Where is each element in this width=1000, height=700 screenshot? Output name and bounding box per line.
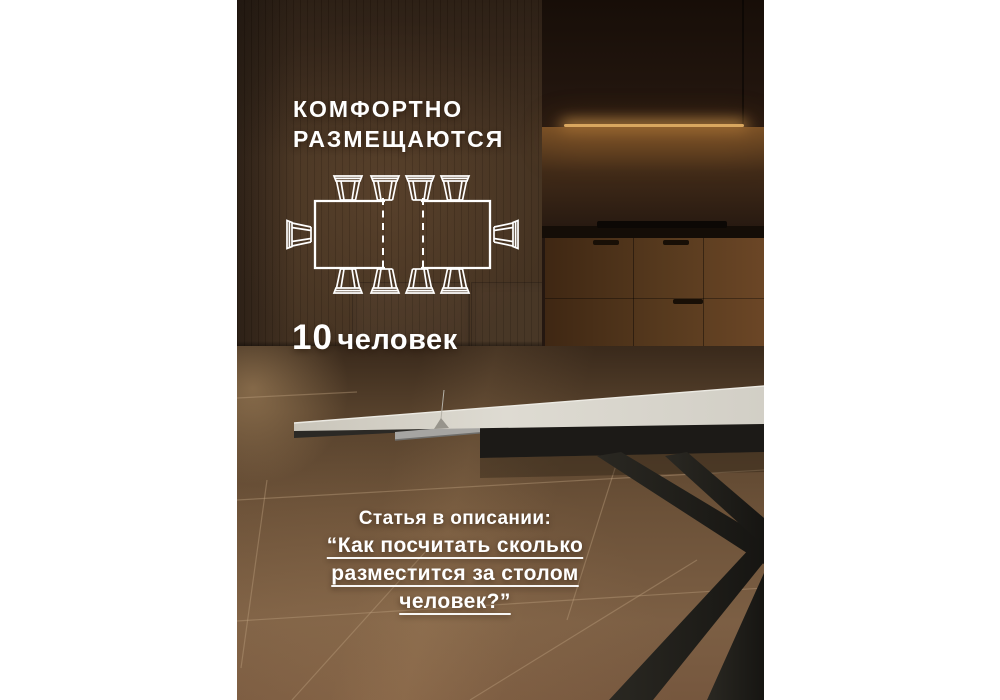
- article-title-line1: “Как посчитать сколько: [277, 532, 633, 560]
- article-note: Статья в описании: “Как посчитать скольк…: [277, 506, 633, 616]
- table-seating-diagram: [278, 168, 524, 300]
- headline: КОМФОРТНО РАЗМЕЩАЮТСЯ: [293, 94, 504, 154]
- kitchen-photo-background: КОМФОРТНО РАЗМЕЩАЮТСЯ: [237, 0, 764, 700]
- article-title-line3: человек?”: [277, 588, 633, 616]
- left-white-margin: [0, 0, 237, 700]
- capacity-unit: человек: [337, 324, 457, 356]
- product-infographic-card: КОМФОРТНО РАЗМЕЩАЮТСЯ: [0, 0, 1000, 700]
- ceramic-tabletop: [294, 386, 764, 431]
- capacity-label: 10 человек: [292, 318, 458, 358]
- headline-line2: РАЗМЕЩАЮТСЯ: [293, 124, 504, 154]
- right-white-margin: [764, 0, 1000, 700]
- chair-icons: [287, 176, 518, 293]
- article-intro: Статья в описании:: [277, 506, 633, 532]
- article-title-line2: разместится за столом: [277, 560, 633, 588]
- table-outline: [315, 201, 490, 268]
- capacity-value: 10: [292, 318, 333, 357]
- extension-leaf-dashed-lines: [383, 198, 423, 271]
- headline-line1: КОМФОРТНО: [293, 94, 504, 124]
